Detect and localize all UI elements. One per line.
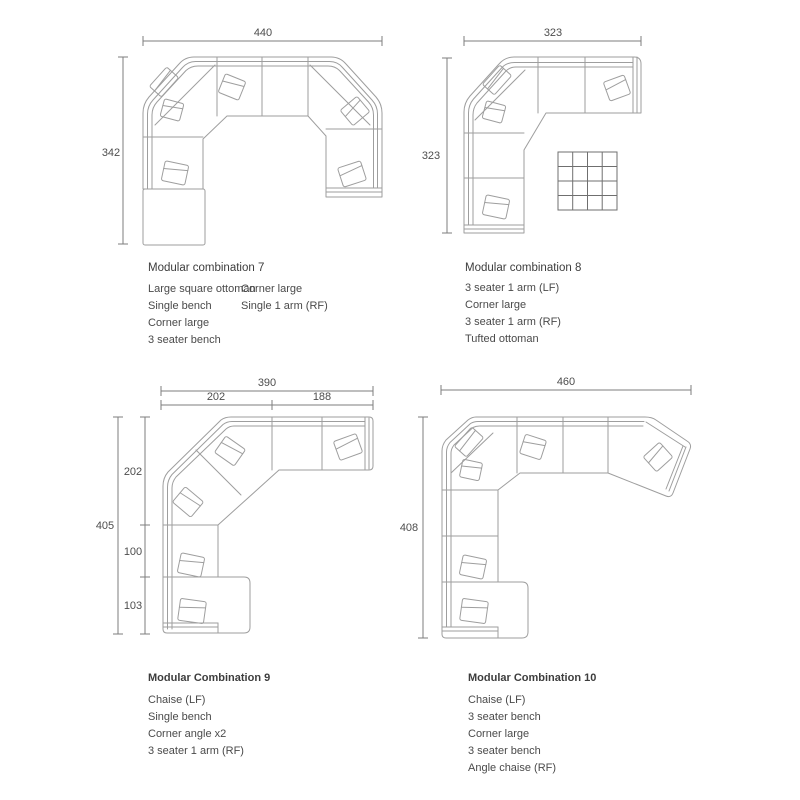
height-segment-label: 100	[124, 546, 142, 558]
width-segment-label: 188	[313, 391, 331, 403]
width-dimension: 460	[441, 376, 691, 395]
height-dimension-label: 342	[102, 147, 120, 159]
pillow-icon	[214, 436, 245, 466]
height-segments-dimension: 202 100 103	[124, 417, 150, 634]
sofa-outline	[442, 417, 691, 638]
width-dimension: 440	[143, 27, 382, 46]
part-item: Single 1 arm (RF)	[241, 298, 328, 315]
part-item: Corner angle x2	[148, 726, 244, 743]
pillow-icon	[177, 553, 205, 578]
combination-8-diagram: 323 323	[415, 10, 710, 260]
combination-7-parts-column-1: Large square ottoman Single bench Corner…	[148, 281, 256, 349]
sofa-outline	[163, 417, 373, 633]
combination-9-title: Modular Combination 9	[148, 672, 270, 684]
part-item: Angle chaise (RF)	[468, 760, 556, 777]
combination-10-title: Modular Combination 10	[468, 672, 596, 684]
height-dimension-label: 323	[422, 150, 440, 162]
pillow-icon	[482, 195, 510, 220]
height-dimension-label: 405	[96, 520, 114, 532]
pillow-icon	[482, 101, 506, 124]
pillow-icon	[172, 487, 203, 518]
width-dimension: 323	[464, 27, 641, 46]
height-dimension-label: 408	[400, 522, 418, 534]
width-segments-dimension: 202 188	[161, 391, 373, 410]
part-item: Single bench	[148, 298, 256, 315]
pillow-icon	[178, 598, 207, 623]
tufted-ottoman	[558, 152, 617, 210]
part-item: Large square ottoman	[148, 281, 256, 298]
height-dimension: 323	[422, 58, 452, 233]
part-item: 3 seater 1 arm (LF)	[465, 280, 561, 297]
width-dimension-label: 440	[254, 27, 272, 39]
width-dimension-label: 390	[258, 377, 276, 389]
height-dimension: 408	[400, 417, 428, 638]
part-item: 3 seater bench	[468, 743, 556, 760]
combination-7-parts-column-2: Corner large Single 1 arm (RF)	[241, 281, 328, 315]
combination-7-title: Modular combination 7	[148, 262, 264, 274]
pillow-icon	[337, 161, 366, 187]
sofa-outline	[464, 57, 641, 233]
width-segment-label: 202	[207, 391, 225, 403]
part-item: 3 seater 1 arm (RF)	[465, 314, 561, 331]
part-item: Corner large	[465, 297, 561, 314]
catalog-page: 440 342 Mo	[0, 0, 800, 800]
combination-8-parts: 3 seater 1 arm (LF) Corner large 3 seate…	[465, 280, 561, 348]
sofa-outline	[143, 57, 382, 245]
pillow-icon	[460, 598, 489, 623]
pillow-icon	[519, 434, 546, 460]
combination-10-parts: Chaise (LF) 3 seater bench Corner large …	[468, 692, 556, 777]
height-dimension: 342	[102, 57, 128, 244]
pillow-icon	[160, 99, 184, 122]
large-square-ottoman	[143, 189, 205, 245]
part-item: Corner large	[148, 315, 256, 332]
height-segment-label: 103	[124, 600, 142, 612]
combination-9-parts: Chaise (LF) Single bench Corner angle x2…	[148, 692, 244, 760]
part-item: 3 seater bench	[148, 332, 256, 349]
pillow-icon	[603, 75, 631, 101]
part-item: Chaise (LF)	[148, 692, 244, 709]
pillow-icon	[340, 96, 370, 125]
height-dimension: 405	[96, 417, 123, 634]
pillow-icon	[643, 442, 673, 472]
part-item: Chaise (LF)	[468, 692, 556, 709]
pillow-icon	[333, 433, 362, 460]
part-item: Single bench	[148, 709, 244, 726]
pillow-icon	[218, 74, 246, 101]
part-item: Corner large	[241, 281, 328, 298]
combination-10-diagram: 460 408	[395, 375, 700, 665]
combination-7-diagram: 440 342	[100, 10, 400, 260]
part-item: Corner large	[468, 726, 556, 743]
width-dimension: 390	[161, 377, 373, 396]
width-dimension-label: 460	[557, 376, 575, 388]
pillow-icon	[161, 161, 189, 186]
pillow-icon	[459, 555, 487, 580]
pillow-icon	[459, 459, 482, 481]
part-item: 3 seater bench	[468, 709, 556, 726]
part-item: Tufted ottoman	[465, 331, 561, 348]
height-segment-label: 202	[124, 466, 142, 478]
combination-8-title: Modular combination 8	[465, 262, 581, 274]
width-dimension-label: 323	[544, 27, 562, 39]
part-item: 3 seater 1 arm (RF)	[148, 743, 244, 760]
combination-9-diagram: 390 202 188 405 202 100 103	[90, 375, 400, 665]
